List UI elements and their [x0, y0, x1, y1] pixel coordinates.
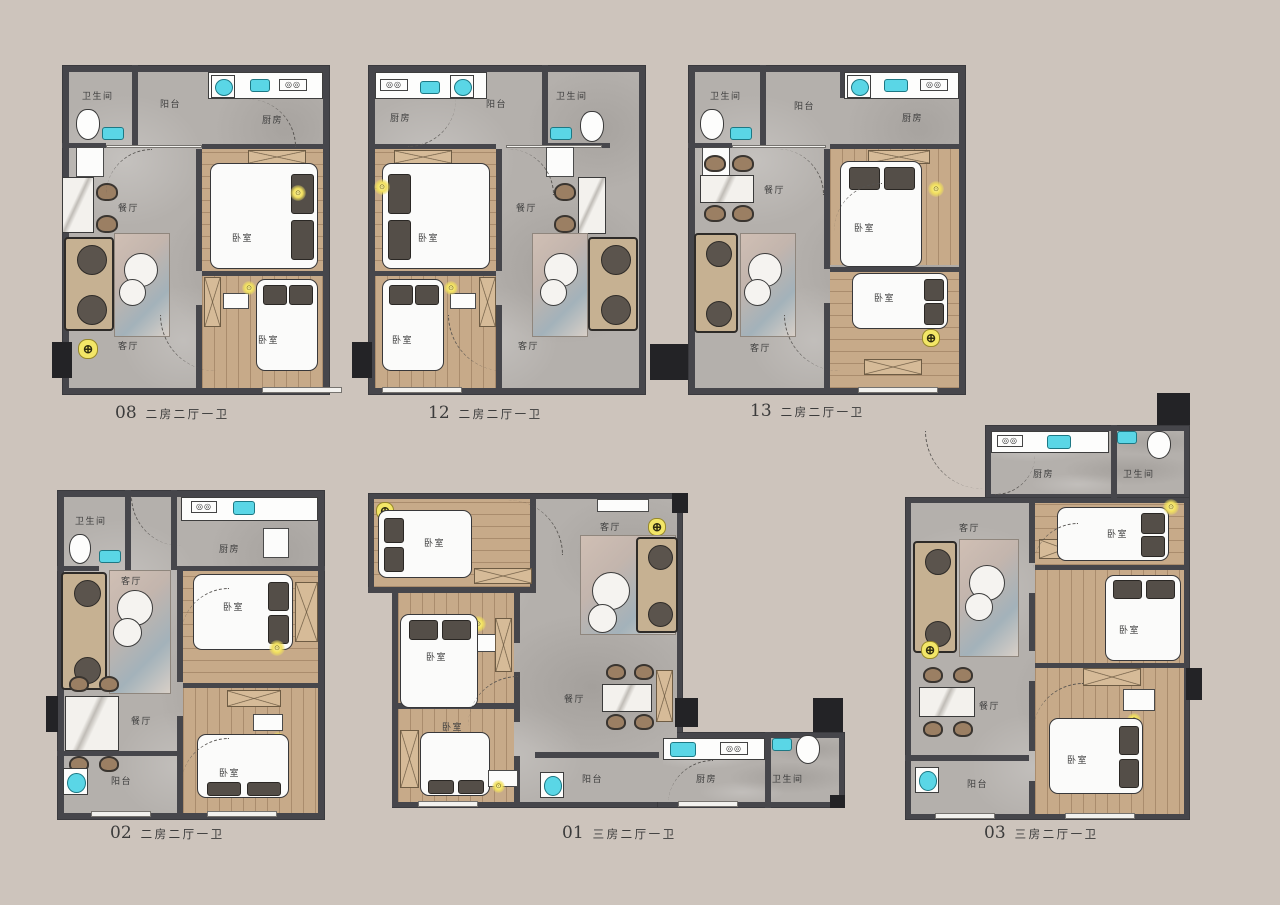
wardrobe [495, 618, 512, 672]
dining-table [62, 177, 94, 233]
bed [382, 279, 444, 371]
chair [704, 205, 726, 222]
structural-block [352, 342, 372, 378]
room-label: 卧室 [219, 766, 240, 779]
side-table [1123, 689, 1155, 711]
room-label: 厨房 [902, 111, 923, 124]
washing-machine [211, 75, 235, 98]
sofa [913, 541, 957, 653]
compass-icon: ⊕ [921, 641, 939, 659]
sink [102, 127, 124, 140]
chair [69, 676, 89, 692]
room-label: 卧室 [418, 231, 439, 244]
stove: ◎◎ [920, 79, 948, 91]
plan-type-label: 二房二厅一卫 [141, 826, 225, 842]
sofa [694, 233, 738, 333]
door-arc [925, 431, 983, 489]
dining-table [602, 684, 652, 712]
bed [382, 163, 490, 269]
window [207, 811, 277, 817]
wall [57, 751, 179, 756]
cabinet [263, 528, 289, 558]
structural-block [650, 344, 688, 380]
room-label: 卫生间 [710, 89, 742, 102]
sink [233, 501, 255, 515]
wall [765, 732, 771, 808]
wall [196, 149, 202, 271]
wardrobe [394, 150, 452, 164]
coffee-table [119, 279, 146, 306]
washing-machine [847, 75, 871, 98]
plan-number: 12 [428, 403, 450, 423]
room-label: 卧室 [1067, 753, 1088, 766]
chair [554, 183, 576, 201]
floor-plan-02: ◎◎⊙⊙卫生间厨房客厅餐厅阳台卧室卧室 [57, 490, 325, 820]
room-label: 客厅 [959, 521, 980, 534]
side-table [450, 293, 476, 309]
sink [730, 127, 752, 140]
room-label: 阳台 [160, 97, 181, 110]
chair [96, 215, 118, 233]
room-label: 阳台 [486, 97, 507, 110]
wall [125, 490, 131, 570]
wall [1029, 781, 1035, 814]
plan-type-label: 三房二厅一卫 [593, 826, 677, 842]
room-label: 客厅 [118, 339, 139, 352]
structural-block [813, 698, 843, 732]
toilet [76, 109, 100, 140]
sink [420, 81, 440, 94]
sink [250, 79, 270, 92]
light-icon: ⊙ [1163, 499, 1179, 515]
chair [923, 721, 943, 737]
washing-machine [915, 767, 939, 793]
compass-icon: ⊕ [648, 518, 666, 536]
wardrobe [248, 150, 306, 164]
wall [830, 144, 959, 149]
wall [202, 271, 323, 276]
room-label: 卧室 [232, 231, 253, 244]
light-icon: ⊙ [374, 179, 390, 195]
window [418, 801, 478, 807]
floor-plan-01: ⊕⊕⊙⊙◎◎卧室客厅卧室卧室餐厅阳台厨房卫生间 [368, 480, 845, 808]
room-label: 餐厅 [118, 201, 139, 214]
room-label: 卧室 [392, 333, 413, 346]
compass-icon: ⊕ [922, 329, 940, 347]
chair [732, 205, 754, 222]
washing-machine [540, 772, 564, 798]
sink [1117, 431, 1137, 444]
chair [606, 664, 626, 680]
washing-machine [450, 75, 474, 98]
wall [177, 566, 325, 571]
stove: ◎◎ [997, 435, 1023, 447]
room-label: 阳台 [582, 772, 603, 785]
light-icon: ⊙ [290, 185, 306, 201]
stove: ◎◎ [720, 742, 748, 755]
sofa [64, 237, 114, 331]
notch [368, 593, 392, 808]
wardrobe [656, 670, 673, 722]
window [91, 811, 151, 817]
window [106, 145, 202, 148]
floor-plan-13: ◎◎⊙⊕卫生间阳台厨房餐厅客厅卧室卧室 [688, 65, 966, 395]
plan-caption-08: 08 二房二厅一卫 [115, 403, 230, 423]
room-label: 卧室 [874, 291, 895, 304]
room-label: 卧室 [426, 650, 447, 663]
wall [496, 149, 502, 271]
room-label: 厨房 [219, 542, 240, 555]
bed [1105, 575, 1181, 661]
structural-block [52, 342, 72, 378]
cabinet [76, 147, 104, 177]
plan-caption-01: 01 三房二厅一卫 [562, 823, 677, 843]
structural-block [830, 795, 845, 808]
bed [256, 279, 318, 371]
room-label: 卫生间 [75, 514, 107, 527]
toilet [1147, 431, 1171, 459]
sink [772, 738, 792, 751]
dining-table [578, 177, 606, 234]
plan-number: 01 [562, 823, 584, 843]
light-icon: ⊙ [242, 281, 256, 295]
wall [535, 752, 659, 758]
structural-block [675, 698, 698, 727]
cabinet [546, 147, 574, 177]
window [732, 145, 826, 148]
wall [1029, 593, 1035, 651]
wall [375, 144, 496, 149]
plan-number: 02 [110, 823, 132, 843]
room-label: 客厅 [750, 341, 771, 354]
plan-number: 03 [984, 823, 1006, 843]
light-icon: ⊙ [444, 281, 458, 295]
chair [953, 721, 973, 737]
wardrobe [295, 582, 318, 642]
bed [210, 163, 318, 269]
room-label: 餐厅 [764, 183, 785, 196]
wall [830, 267, 959, 272]
sofa [61, 572, 107, 690]
toilet [796, 735, 820, 764]
wardrobe [474, 568, 532, 584]
plan-caption-13: 13 二房二厅一卫 [750, 401, 865, 421]
room-label: 厨房 [390, 111, 411, 124]
plan-type-label: 二房二厅一卫 [459, 406, 543, 422]
coffee-table [965, 593, 993, 621]
cabinet [597, 499, 649, 512]
light-icon: ⊙ [492, 780, 505, 793]
window [1065, 813, 1135, 819]
chair [554, 215, 576, 233]
floor-plan-08: ◎◎⊙⊙⊕卫生间阳台厨房餐厅客厅卧室卧室 [62, 65, 330, 395]
plan-caption-12: 12 二房二厅一卫 [428, 403, 543, 423]
bed [852, 273, 948, 329]
wall [368, 587, 536, 593]
wall [824, 149, 830, 269]
chair [732, 155, 754, 172]
room-label: 阳台 [794, 99, 815, 112]
plan-type-label: 三房二厅一卫 [1015, 826, 1099, 842]
wall [177, 716, 183, 813]
dining-table [65, 696, 119, 751]
wall [905, 755, 1029, 761]
chair [923, 667, 943, 683]
toilet [580, 111, 604, 142]
room-label: 卧室 [424, 536, 445, 549]
toilet [69, 534, 91, 564]
washing-machine [63, 768, 88, 795]
side-table [253, 714, 283, 731]
sink [670, 742, 696, 757]
room-label: 厨房 [696, 772, 717, 785]
sink [99, 550, 121, 563]
wall [514, 593, 520, 643]
room-label: 客厅 [518, 339, 539, 352]
wall [1029, 681, 1035, 751]
floor-plan-03: ◎◎⊕⊙⊙厨房卫生间客厅卧室卧室卧室餐厅阳台 [905, 425, 1190, 820]
stove: ◎◎ [279, 79, 307, 91]
room-label: 餐厅 [979, 699, 1000, 712]
wardrobe [400, 730, 419, 788]
coffee-table [744, 279, 771, 306]
wall [542, 65, 548, 145]
room-label: 卫生间 [82, 89, 114, 102]
room-label: 卧室 [258, 333, 279, 346]
room-label: 客厅 [121, 574, 142, 587]
wall [183, 683, 318, 688]
chair [634, 664, 654, 680]
sofa [636, 537, 678, 633]
room-label: 卫生间 [556, 89, 588, 102]
chair [99, 756, 119, 772]
sofa [588, 237, 638, 331]
room-label: 卧室 [442, 720, 463, 733]
coffee-table [540, 279, 567, 306]
chair [606, 714, 626, 730]
light-icon: ⊙ [928, 181, 944, 197]
chair [634, 714, 654, 730]
plan-caption-02: 02 二房二厅一卫 [110, 823, 225, 843]
room-label: 客厅 [600, 520, 621, 533]
room-label: 厨房 [262, 113, 283, 126]
sink [884, 79, 908, 92]
dining-table [919, 687, 975, 717]
room-label: 卧室 [854, 221, 875, 234]
plan-caption-03: 03 三房二厅一卫 [984, 823, 1099, 843]
room-label: 餐厅 [131, 714, 152, 727]
plan-number: 08 [115, 403, 137, 423]
side-table [223, 293, 249, 309]
room-label: 卫生间 [772, 772, 804, 785]
toilet [700, 109, 724, 140]
window [935, 813, 995, 819]
dining-table [700, 175, 754, 203]
window [262, 387, 342, 393]
window [382, 387, 462, 393]
structural-block [1186, 668, 1202, 700]
wardrobe [1083, 668, 1141, 686]
sink [1047, 435, 1071, 449]
plan-type-label: 二房二厅一卫 [146, 406, 230, 422]
chair [99, 676, 119, 692]
wardrobe [227, 690, 281, 707]
stove: ◎◎ [380, 79, 408, 91]
chair [704, 155, 726, 172]
plan-number: 13 [750, 401, 772, 421]
wall [375, 271, 496, 276]
room-label: 卫生间 [1123, 467, 1155, 480]
structural-block [1157, 393, 1190, 425]
structural-block [672, 493, 688, 513]
stove: ◎◎ [191, 501, 217, 513]
room-label: 卧室 [1107, 527, 1128, 540]
floorplan-sheet: 08 二房二厅一卫 12 二房二厅一卫 13 二房二厅一卫 02 二房二厅一卫 … [0, 0, 1280, 905]
wall [392, 593, 398, 802]
coffee-table [588, 604, 617, 633]
plan-type-label: 二房二厅一卫 [781, 404, 865, 420]
wall [760, 65, 766, 145]
room-label: 卧室 [223, 600, 244, 613]
light-icon: ⊙ [269, 640, 285, 656]
bed [420, 732, 490, 796]
window [858, 387, 938, 393]
room-label: 厨房 [1033, 467, 1054, 480]
floor-plan-12: ◎◎⊙⊙厨房阳台卫生间餐厅客厅卧室卧室 [368, 65, 646, 395]
wardrobe [864, 359, 922, 375]
structural-block [46, 696, 58, 732]
chair [953, 667, 973, 683]
room-label: 餐厅 [516, 201, 537, 214]
wall [132, 65, 138, 145]
compass-icon: ⊕ [78, 339, 98, 359]
sink [550, 127, 572, 140]
coffee-table [113, 618, 142, 647]
room-label: 阳台 [967, 777, 988, 790]
room-label: 卧室 [1119, 623, 1140, 636]
room-label: 阳台 [111, 774, 132, 787]
room-label: 餐厅 [564, 692, 585, 705]
wall [57, 566, 99, 571]
